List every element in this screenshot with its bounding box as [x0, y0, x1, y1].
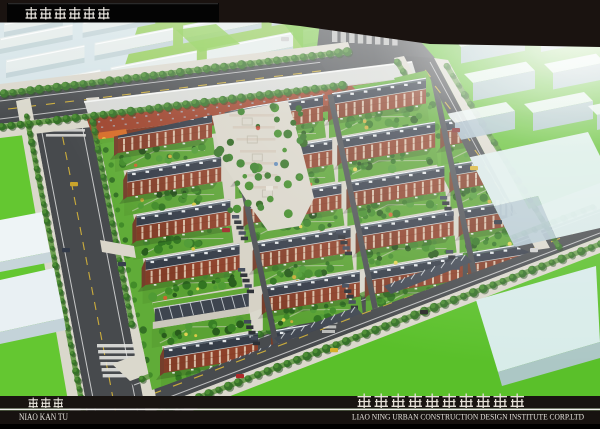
svg-text:NIAO KAN TU: NIAO KAN TU	[19, 413, 68, 423]
svg-text:LIAO NING URBAN CONSTRUCTION D: LIAO NING URBAN CONSTRUCTION DESIGN INST…	[352, 412, 584, 422]
